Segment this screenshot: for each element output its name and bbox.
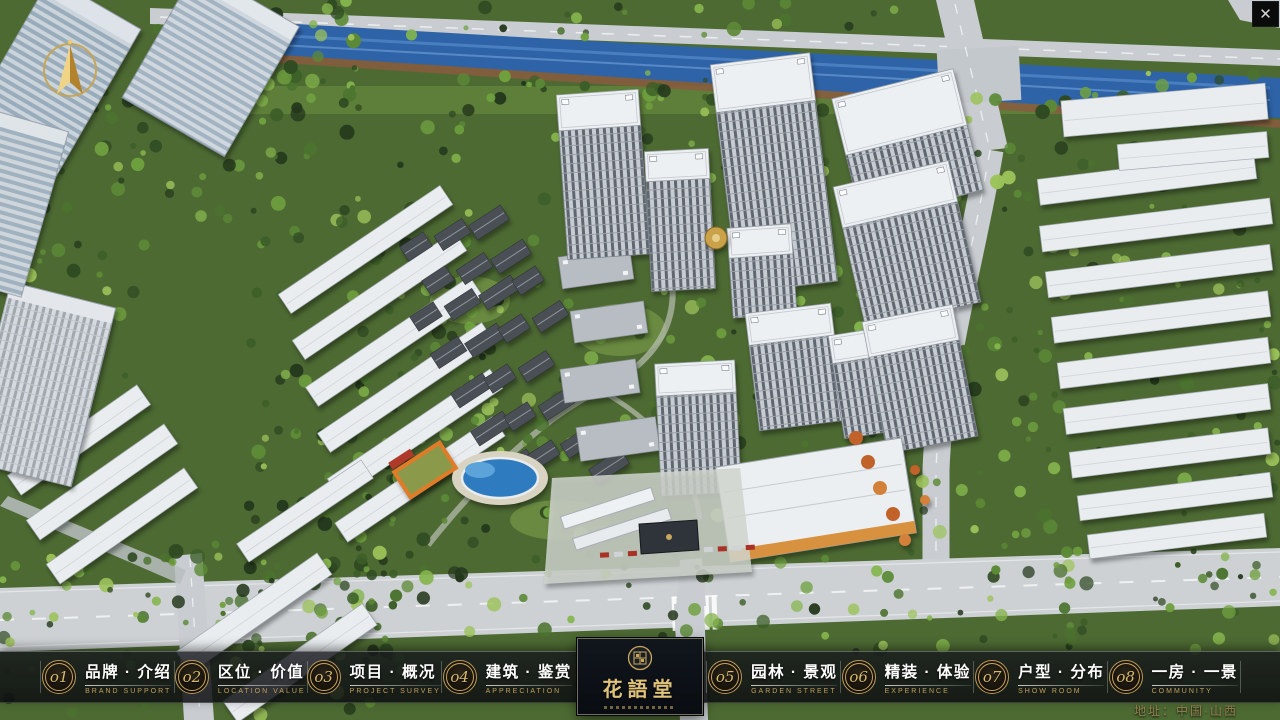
- nav-item-architecture[interactable]: o4 建筑 · 鉴赏 APPRECIATION: [441, 652, 575, 702]
- nav-item-unit-distribution[interactable]: o7 户型 · 分布 SHOW ROOM: [973, 652, 1107, 702]
- nav-item-rule: [218, 685, 306, 686]
- nav-item-number-badge: o3: [307, 660, 341, 694]
- nav-item-number-badge: o2: [175, 660, 209, 694]
- nav-item-rule: [1018, 685, 1104, 686]
- seal-emblem-icon: [627, 645, 653, 671]
- nav-item-number-badge: o5: [708, 660, 742, 694]
- nav-item-label-zh: 品牌 · 介绍: [85, 660, 171, 682]
- nav-edge-right: [1240, 652, 1280, 702]
- nav-item-label-zh: 户型 · 分布: [1018, 660, 1104, 682]
- nav-item-label-en: LOCATION VALUE: [218, 688, 306, 695]
- nav-item-label-zh: 园林 · 景观: [751, 660, 837, 682]
- nav-item-project-overview[interactable]: o3 项目 · 概况 PROJECT SURVEY: [307, 652, 441, 702]
- nav-item-label-en: EXPERIENCE: [885, 688, 971, 695]
- bottom-nav-bar: o1 品牌 · 介绍 BRAND SUPPORT o2 区位 · 价值 LOCA…: [0, 651, 1280, 703]
- nav-item-label-zh: 精装 · 体验: [885, 660, 971, 682]
- nav-item-number-badge: o8: [1109, 660, 1143, 694]
- nav-item-number-badge: o7: [975, 660, 1009, 694]
- nav-item-label-zh: 区位 · 价值: [218, 660, 306, 682]
- nav-item-rule: [885, 685, 971, 686]
- close-button[interactable]: ✕: [1252, 1, 1279, 27]
- nav-item-label-zh: 建筑 · 鉴赏: [486, 660, 572, 682]
- nav-item-number-badge: o4: [443, 660, 477, 694]
- compass-north-icon: [38, 33, 102, 101]
- nav-item-garden-landscape[interactable]: o5 园林 · 景观 GARDEN STREET: [706, 652, 840, 702]
- nav-item-room-view[interactable]: o8 一房 · 一景 COMMUNITY: [1107, 652, 1241, 702]
- nav-item-label-en: PROJECT SURVEY: [350, 688, 441, 695]
- nav-item-location-value[interactable]: o2 区位 · 价值 LOCATION VALUE: [174, 652, 308, 702]
- nav-item-number-badge: o6: [842, 660, 876, 694]
- nav-item-brand-intro[interactable]: o1 品牌 · 介绍 BRAND SUPPORT: [40, 652, 174, 702]
- nav-item-label-en: BRAND SUPPORT: [85, 688, 171, 695]
- nav-item-label-en: COMMUNITY: [1152, 688, 1238, 695]
- nav-item-rule: [1152, 685, 1238, 686]
- project-logo-panel[interactable]: 花語堂: [577, 638, 703, 715]
- nav-item-label-en: GARDEN STREET: [751, 688, 837, 695]
- nav-item-label-en: SHOW ROOM: [1018, 688, 1104, 695]
- nav-item-rule: [751, 685, 837, 686]
- project-logo-title: 花語堂: [603, 673, 678, 702]
- nav-item-rule: [85, 685, 171, 686]
- nav-item-label-zh: 项目 · 概况: [350, 660, 441, 682]
- close-icon: ✕: [1259, 5, 1272, 23]
- nav-item-label-zh: 一房 · 一景: [1152, 660, 1238, 682]
- nav-item-rule: [350, 685, 441, 686]
- nav-item-label-en: APPRECIATION: [486, 688, 572, 695]
- project-address: 地址：中国·山西: [1134, 702, 1238, 719]
- logo-tagline: [604, 706, 676, 709]
- nav-item-rule: [486, 685, 572, 686]
- nav-edge-left: [0, 652, 40, 702]
- presentation-screen: ✕ o1 品牌 · 介绍 BRAND SUPPORT o2 区位 · 价值 LO…: [0, 0, 1280, 720]
- logo-slot: 花語堂: [574, 652, 706, 702]
- nav-item-number-badge: o1: [42, 660, 76, 694]
- site-plan-map[interactable]: [0, 0, 1280, 720]
- nav-item-decor-experience[interactable]: o6 精装 · 体验 EXPERIENCE: [840, 652, 974, 702]
